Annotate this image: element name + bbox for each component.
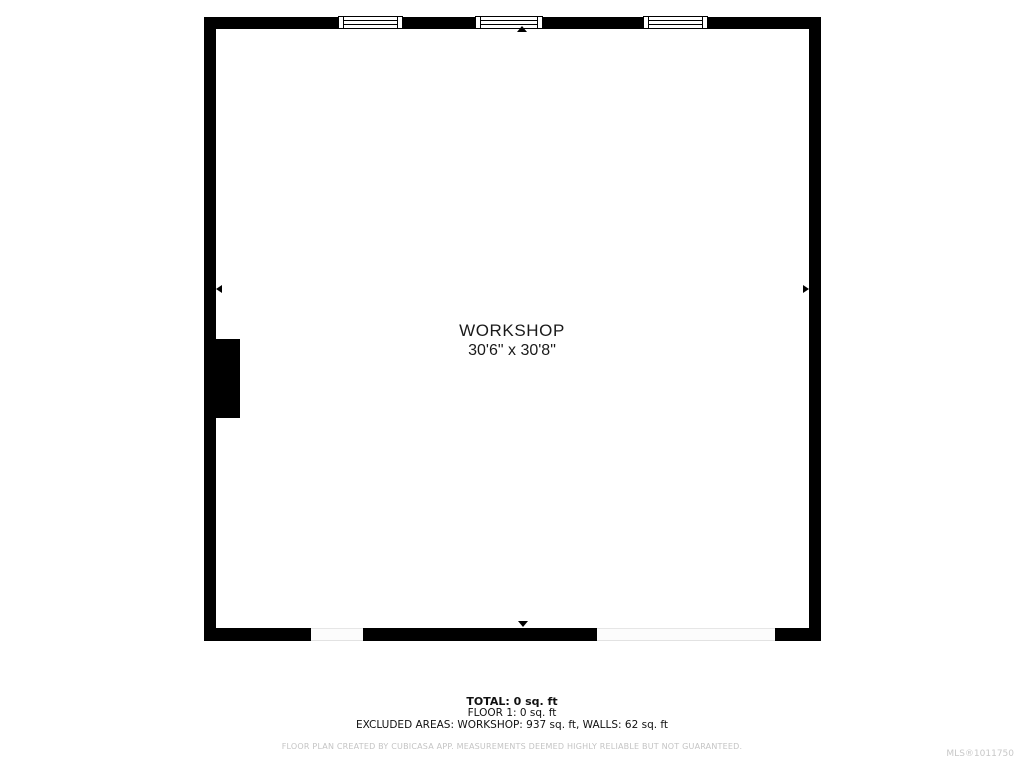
wall-bottom-segment-right — [775, 628, 821, 641]
window-frame-line — [537, 17, 538, 28]
area-summary: TOTAL: 0 sq. ft FLOOR 1: 0 sq. ft EXCLUD… — [0, 696, 1024, 731]
window-pane-line — [344, 20, 397, 21]
arrow-right-icon — [803, 285, 809, 293]
window-frame-line — [480, 17, 481, 28]
window-top-center-icon — [475, 16, 543, 29]
summary-excluded: EXCLUDED AREAS: WORKSHOP: 937 sq. ft, WA… — [0, 720, 1024, 732]
door-opening-left — [311, 628, 363, 641]
wall-left — [204, 17, 216, 641]
window-pane-line — [344, 24, 397, 25]
arrow-down-icon — [518, 621, 528, 627]
window-top-left-icon — [338, 16, 403, 29]
window-pane-line — [649, 20, 702, 21]
floor-plan-page: WORKSHOP 30'6" x 30'8" TOTAL: 0 sq. ft F… — [0, 0, 1024, 768]
room-name: WORKSHOP — [216, 321, 808, 340]
room-label-block: WORKSHOP 30'6" x 30'8" — [216, 321, 808, 360]
disclaimer-text: FLOOR PLAN CREATED BY CUBICASA APP. MEAS… — [0, 742, 1024, 751]
window-frame-line — [702, 17, 703, 28]
window-pane-line — [649, 24, 702, 25]
wall-right — [809, 17, 821, 641]
room-dimensions: 30'6" x 30'8" — [216, 341, 808, 360]
window-top-right-icon — [643, 16, 708, 29]
arrow-up-icon — [517, 26, 527, 32]
window-pane-line — [481, 24, 537, 25]
arrow-left-icon — [216, 285, 222, 293]
window-frame-line — [397, 17, 398, 28]
window-frame-line — [343, 17, 344, 28]
window-pane-line — [481, 20, 537, 21]
window-frame-line — [648, 17, 649, 28]
mls-number: MLS®1011750 — [946, 749, 1014, 759]
door-opening-right — [597, 628, 775, 641]
summary-floor: FLOOR 1: 0 sq. ft — [0, 708, 1024, 720]
wall-bottom-segment-left — [204, 628, 311, 641]
wall-bottom-segment-center — [363, 628, 597, 641]
